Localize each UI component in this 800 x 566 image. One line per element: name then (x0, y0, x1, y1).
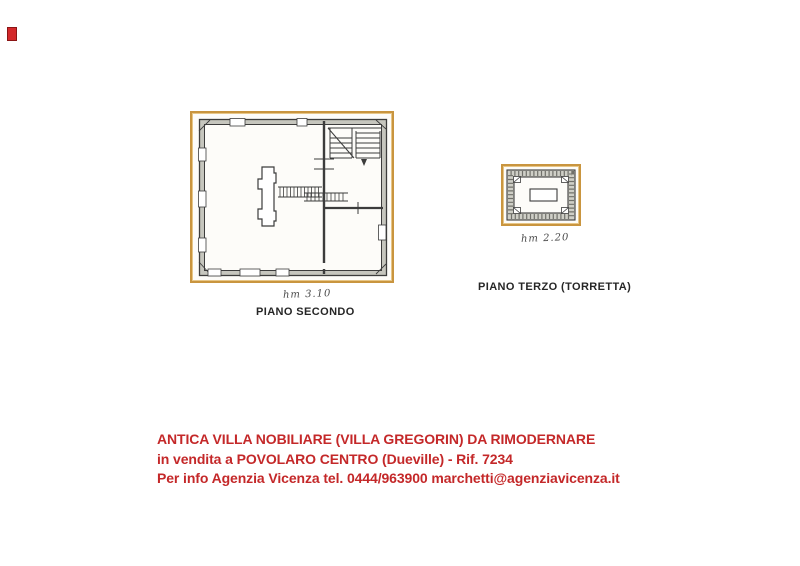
listing-text-block: ANTICA VILLA NOBILIARE (VILLA GREGORIN) … (157, 430, 620, 489)
piano-secondo-plan-frame (190, 111, 394, 283)
piano-terzo-plan-frame (501, 164, 581, 226)
listing-image-canvas: hm 3.10 hm 2.20 PIANO SECONDO PIANO TERZ… (0, 0, 800, 566)
piano-terzo-floorplan-drawing (503, 166, 579, 224)
height-note-piano-secondo: hm 3.10 (283, 288, 332, 301)
caption-piano-secondo: PIANO SECONDO (256, 306, 355, 318)
caption-piano-terzo: PIANO TERZO (TORRETTA) (478, 281, 631, 293)
listing-contact: Per info Agenzia Vicenza tel. 0444/96390… (157, 469, 620, 489)
listing-title: ANTICA VILLA NOBILIARE (VILLA GREGORIN) … (157, 430, 620, 450)
height-note-piano-terzo: hm 2.20 (521, 232, 570, 245)
red-bullet-artifact (7, 27, 17, 41)
piano-secondo-floorplan-drawing (192, 113, 392, 281)
listing-subtitle: in vendita a POVOLARO CENTRO (Dueville) … (157, 450, 620, 470)
